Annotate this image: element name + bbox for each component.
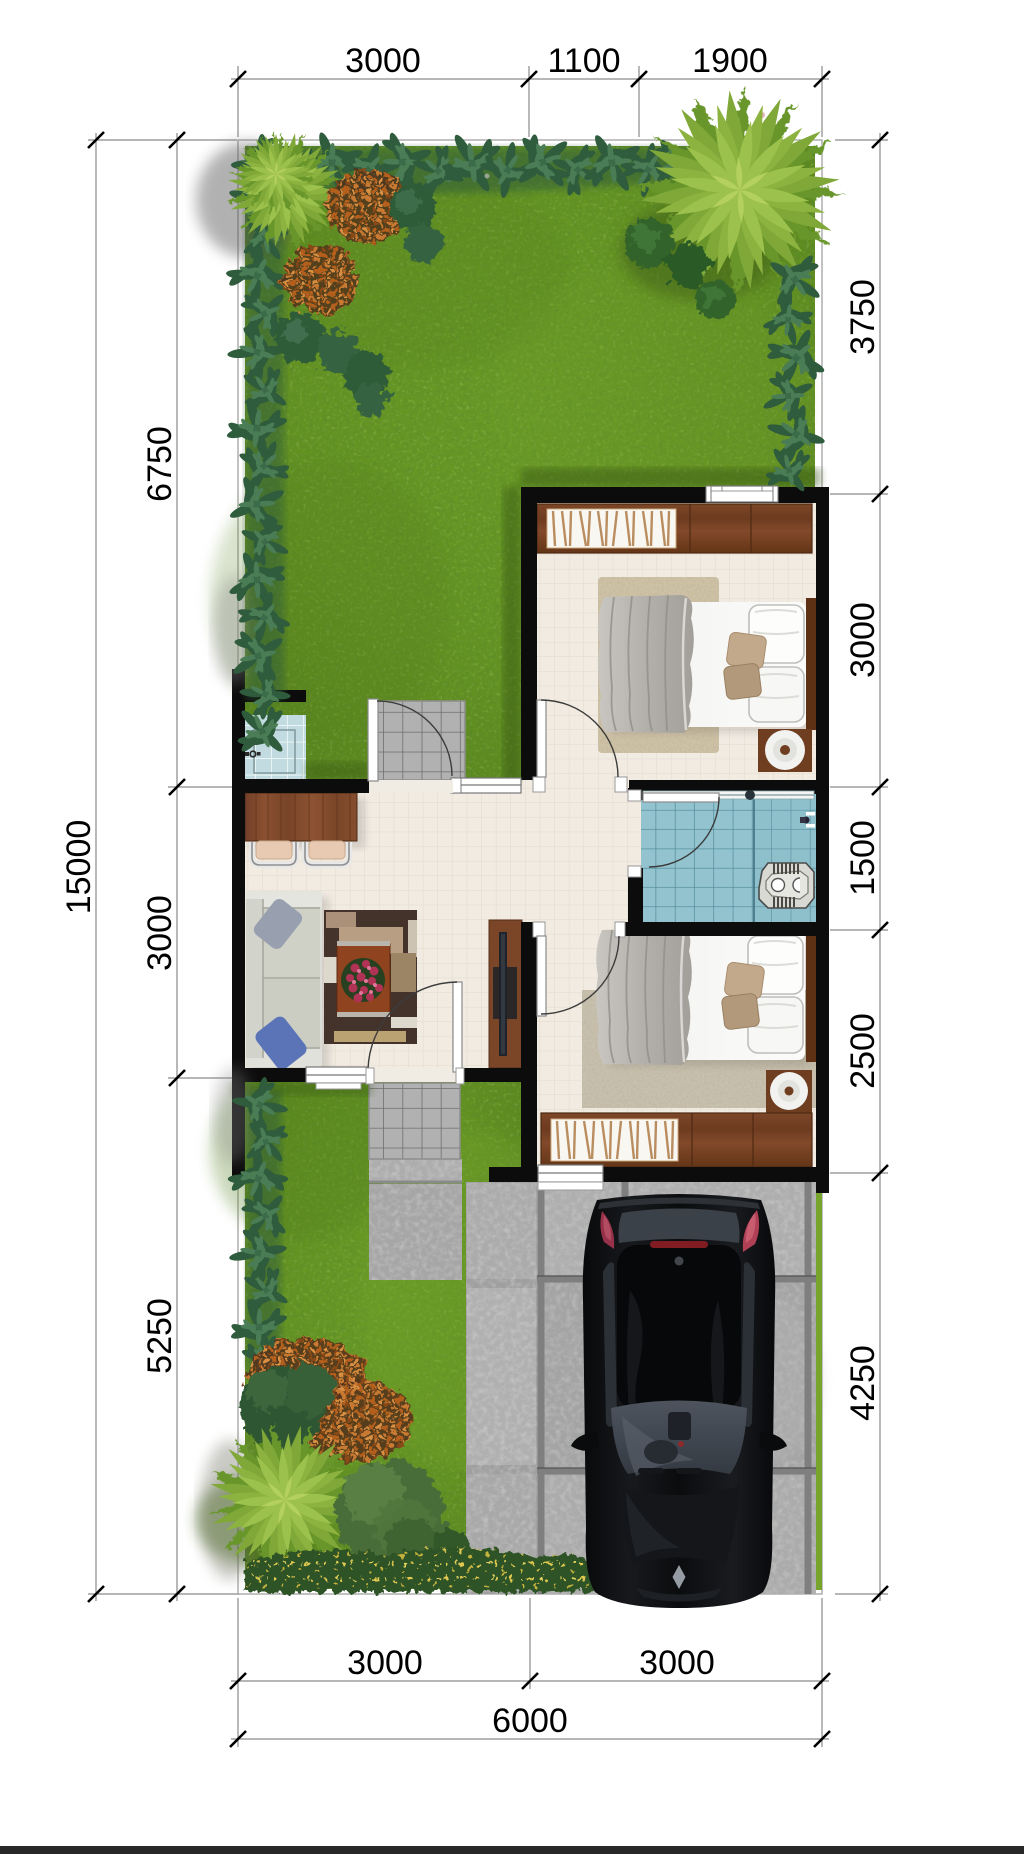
svg-text:6750: 6750 bbox=[141, 426, 179, 502]
svg-text:3000: 3000 bbox=[844, 602, 882, 678]
svg-text:3000: 3000 bbox=[347, 1644, 423, 1682]
svg-text:4250: 4250 bbox=[844, 1345, 882, 1421]
svg-text:1900: 1900 bbox=[692, 42, 768, 80]
svg-text:1100: 1100 bbox=[547, 42, 620, 80]
svg-text:3000: 3000 bbox=[639, 1644, 715, 1682]
svg-text:5250: 5250 bbox=[141, 1298, 179, 1374]
svg-text:3000: 3000 bbox=[345, 42, 421, 80]
svg-text:1500: 1500 bbox=[844, 820, 882, 896]
svg-text:3750: 3750 bbox=[844, 279, 882, 355]
svg-text:2500: 2500 bbox=[844, 1013, 882, 1089]
svg-text:15000: 15000 bbox=[60, 820, 98, 915]
svg-text:3000: 3000 bbox=[141, 895, 179, 971]
svg-text:6000: 6000 bbox=[492, 1702, 568, 1740]
